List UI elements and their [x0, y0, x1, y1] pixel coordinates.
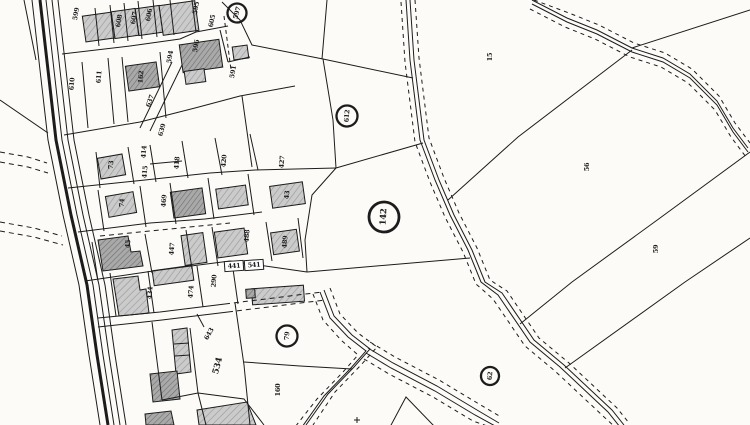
building: [184, 69, 206, 85]
parcel-number: 73: [107, 160, 116, 170]
parcel-number: 488: [242, 229, 251, 243]
parcel-number: 541: [244, 259, 263, 270]
building: [179, 39, 223, 72]
parcel-number-text: 488: [242, 229, 251, 243]
parcel-number-text: 612: [342, 109, 351, 122]
cadastral-map-viewport: 5996086076065956055975965945916106111626…: [0, 0, 750, 425]
parcel-number: 59: [652, 244, 660, 253]
parcel-number-text: 79: [283, 331, 292, 341]
parcel-number-text: 611: [94, 70, 103, 83]
parcel-number: 434: [145, 286, 154, 300]
parcel-number-text: 434: [145, 286, 154, 300]
building: [170, 188, 205, 218]
building: [82, 12, 115, 42]
parcel-number: 469: [159, 194, 168, 208]
parcel-number: 15: [486, 52, 494, 61]
parcel-number: 474: [186, 285, 195, 299]
parcel-number-text: 73: [107, 160, 116, 170]
parcel-number: 447: [167, 242, 176, 255]
building: [181, 233, 207, 266]
parcel-number: 441: [224, 260, 243, 271]
parcel-number-text: 290: [209, 274, 218, 288]
parcel-number-text: 441: [227, 262, 240, 271]
parcel-number-text: 447: [167, 242, 176, 255]
parcel-number-text: 62: [486, 371, 495, 380]
parcel-number: 415: [140, 165, 149, 179]
parcel-number: 420: [219, 154, 228, 168]
parcel-number-text: 414: [139, 145, 148, 159]
parcel-number: 160: [274, 383, 282, 396]
parcel-number-text: 489: [280, 235, 289, 249]
parcel-number-text: 420: [219, 154, 228, 168]
cadastral-map: 5996086076065956055975965945916106111626…: [0, 0, 750, 425]
parcel-number: 427: [277, 155, 286, 168]
parcel-number-text: 43: [283, 190, 292, 200]
parcel-number: 290: [209, 274, 218, 288]
parcel-number-text: 427: [277, 155, 286, 168]
parcel-number-text: 74: [118, 198, 127, 208]
parcel-number-text: 15: [486, 52, 494, 61]
parcel-number-text: 56: [583, 162, 591, 171]
parcel-number-text: 45: [124, 239, 133, 249]
parcel-number: 418: [172, 156, 181, 170]
parcel-number-text: 415: [140, 165, 149, 179]
building: [216, 185, 248, 209]
parcel-number-text: 469: [159, 194, 168, 208]
parcel-number-text: 59: [652, 244, 660, 253]
parcel-number: 43: [283, 190, 292, 200]
parcel-number-text: 418: [172, 156, 181, 170]
parcel-number: 611: [94, 70, 103, 83]
parcel-number: 45: [124, 239, 133, 249]
building: [246, 289, 256, 299]
parcel-number-text: 142: [379, 208, 390, 226]
parcel-number: 489: [280, 235, 289, 249]
parcel-number-text: 162: [136, 70, 145, 83]
parcel-number: 162: [136, 70, 145, 83]
parcel-number-text: 474: [186, 285, 195, 299]
parcel-number: 610: [67, 77, 76, 91]
parcel-number-text: 541: [247, 261, 260, 270]
parcel-number-text: 160: [274, 383, 282, 396]
parcel-number-text: 610: [67, 77, 76, 91]
parcel-number: 414: [139, 145, 148, 159]
parcel-number: 56: [583, 162, 591, 171]
building: [145, 411, 174, 425]
parcel-number: 74: [118, 198, 127, 208]
